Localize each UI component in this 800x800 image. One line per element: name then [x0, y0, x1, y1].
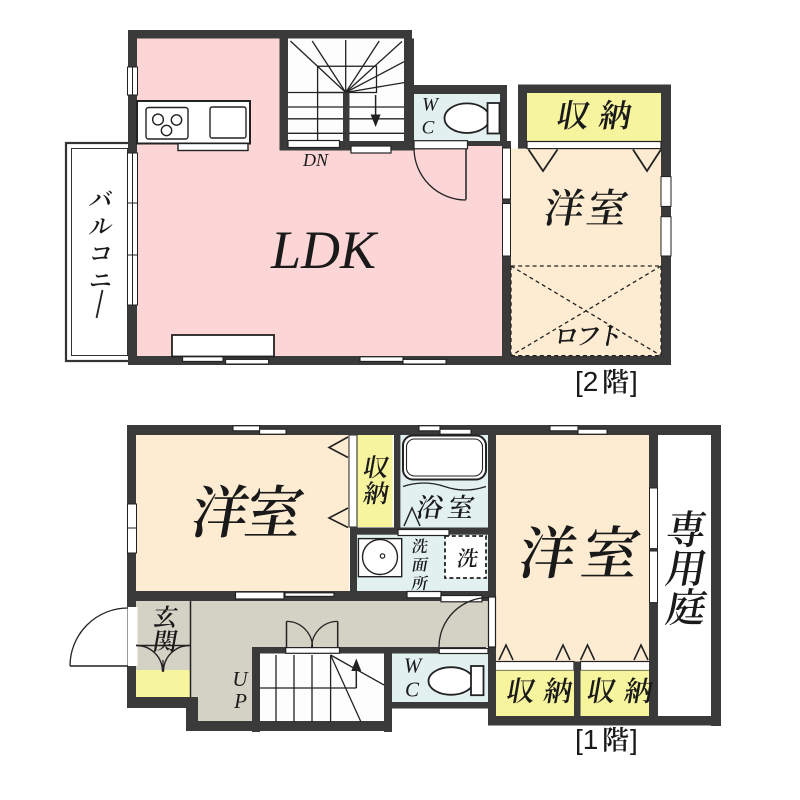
- svg-text:U: U: [232, 667, 249, 691]
- svg-text:[1: [1: [575, 724, 598, 755]
- svg-text:DN: DN: [302, 150, 329, 170]
- svg-text:LDK: LDK: [270, 220, 379, 280]
- svg-text:W: W: [404, 654, 424, 678]
- svg-text:]: ]: [630, 724, 638, 755]
- svg-text:[2: [2: [575, 366, 598, 397]
- svg-text:P: P: [233, 689, 247, 713]
- svg-text:C: C: [405, 678, 420, 702]
- svg-text:W: W: [422, 95, 440, 116]
- svg-text:]: ]: [630, 366, 638, 397]
- svg-text:C: C: [422, 118, 435, 139]
